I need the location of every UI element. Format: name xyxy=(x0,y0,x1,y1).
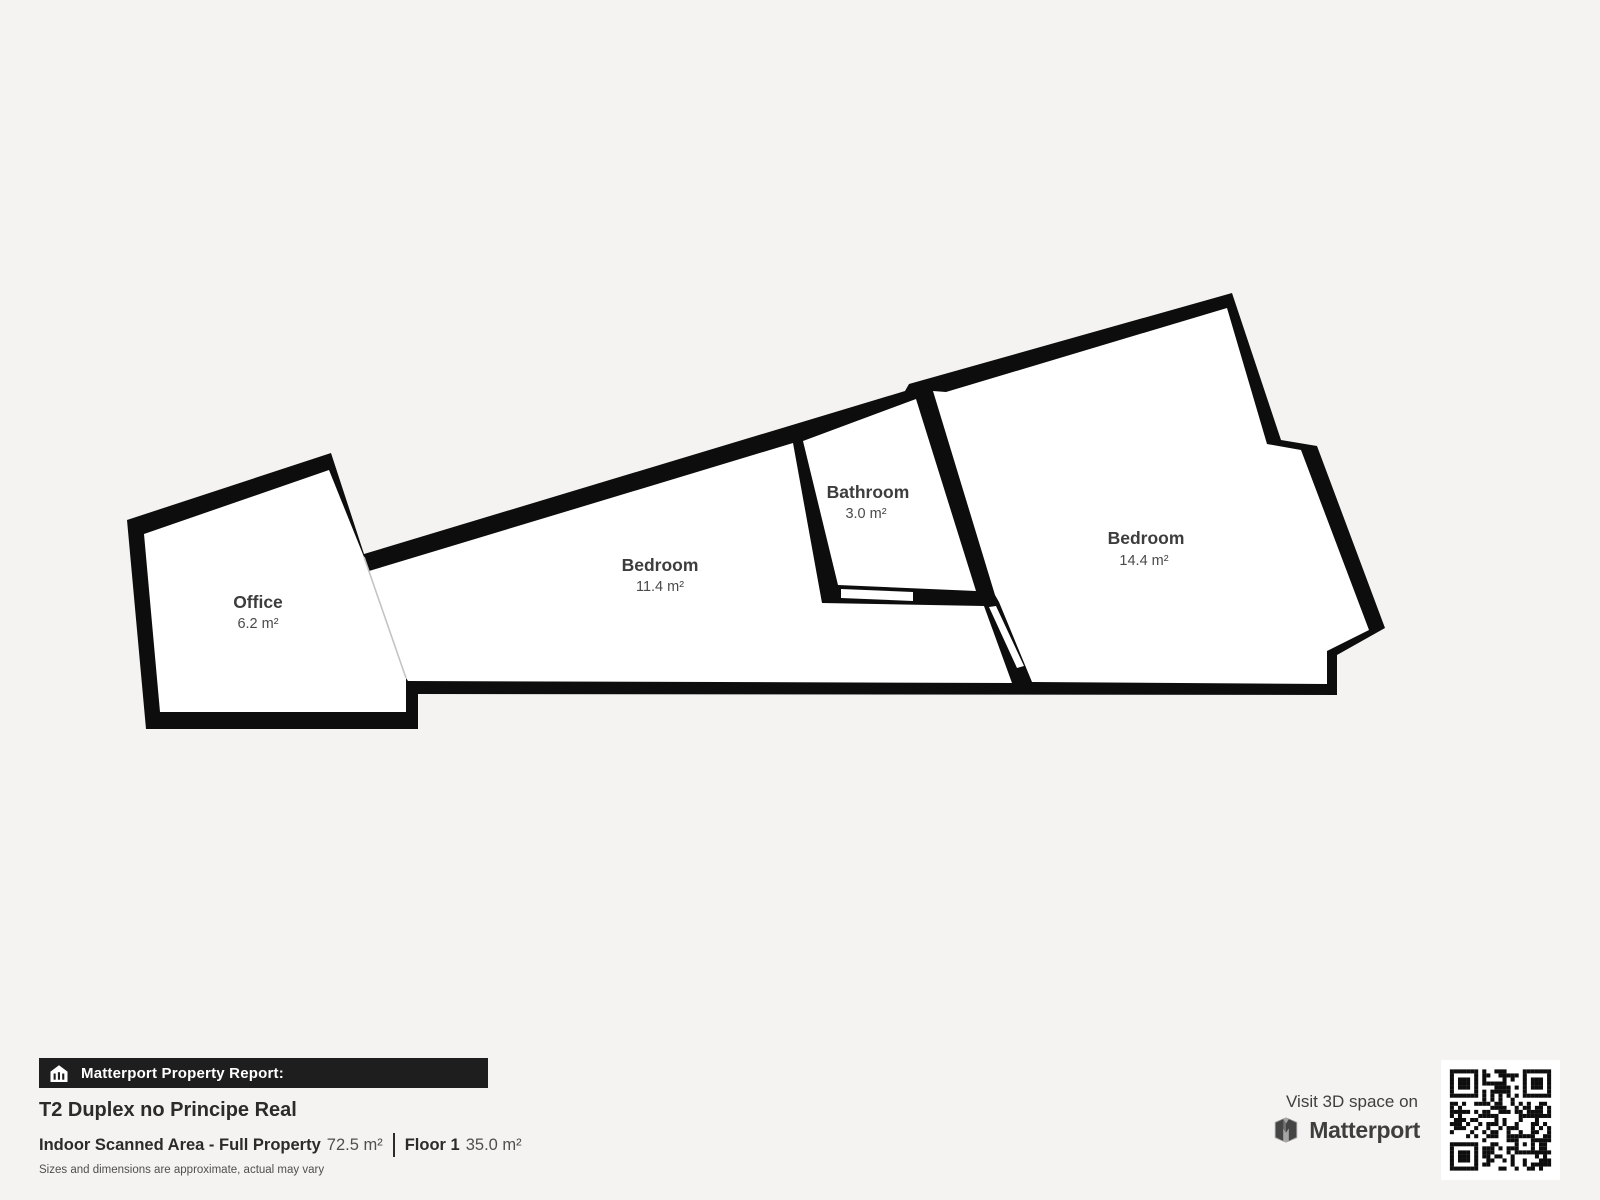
disclaimer-text: Sizes and dimensions are approximate, ac… xyxy=(39,1164,324,1176)
floor-area-value: 35.0 m² xyxy=(466,1136,522,1155)
matterport-promo: Visit 3D space on Matterport xyxy=(1271,1092,1420,1145)
matterport-logo-icon xyxy=(1271,1115,1301,1145)
room-bedroom-1-label: Bedroom xyxy=(622,555,699,575)
floor-label: Floor 1 xyxy=(405,1136,460,1155)
report-info-line: Indoor Scanned Area - Full Property 72.5… xyxy=(39,1133,522,1157)
scanned-area-label: Indoor Scanned Area - Full Property xyxy=(39,1136,321,1155)
report-badge-label: Matterport Property Report: xyxy=(81,1065,284,1082)
property-title: T2 Duplex no Principe Real xyxy=(39,1099,297,1122)
room-bathroom-label: Bathroom xyxy=(827,482,910,502)
visit-3d-text: Visit 3D space on xyxy=(1271,1092,1420,1112)
matterport-brand-text: Matterport xyxy=(1309,1117,1420,1144)
room-office-area: 6.2 m² xyxy=(237,616,278,632)
room-bedroom-2-label: Bedroom xyxy=(1108,528,1185,548)
info-divider xyxy=(393,1133,395,1157)
room-bedroom-2-area: 14.4 m² xyxy=(1119,553,1168,569)
room-office-label: Office xyxy=(233,592,283,612)
room-bedroom-1-area: 11.4 m² xyxy=(636,579,684,595)
floor-plan: Office 6.2 m² Bedroom 11.4 m² Bathroom 3… xyxy=(0,0,1600,1200)
house-report-icon xyxy=(49,1064,69,1083)
report-badge-bar: Matterport Property Report: xyxy=(39,1058,488,1088)
scanned-area-value: 72.5 m² xyxy=(327,1136,383,1155)
qr-code xyxy=(1441,1060,1560,1180)
room-bathroom-area: 3.0 m² xyxy=(845,506,886,522)
